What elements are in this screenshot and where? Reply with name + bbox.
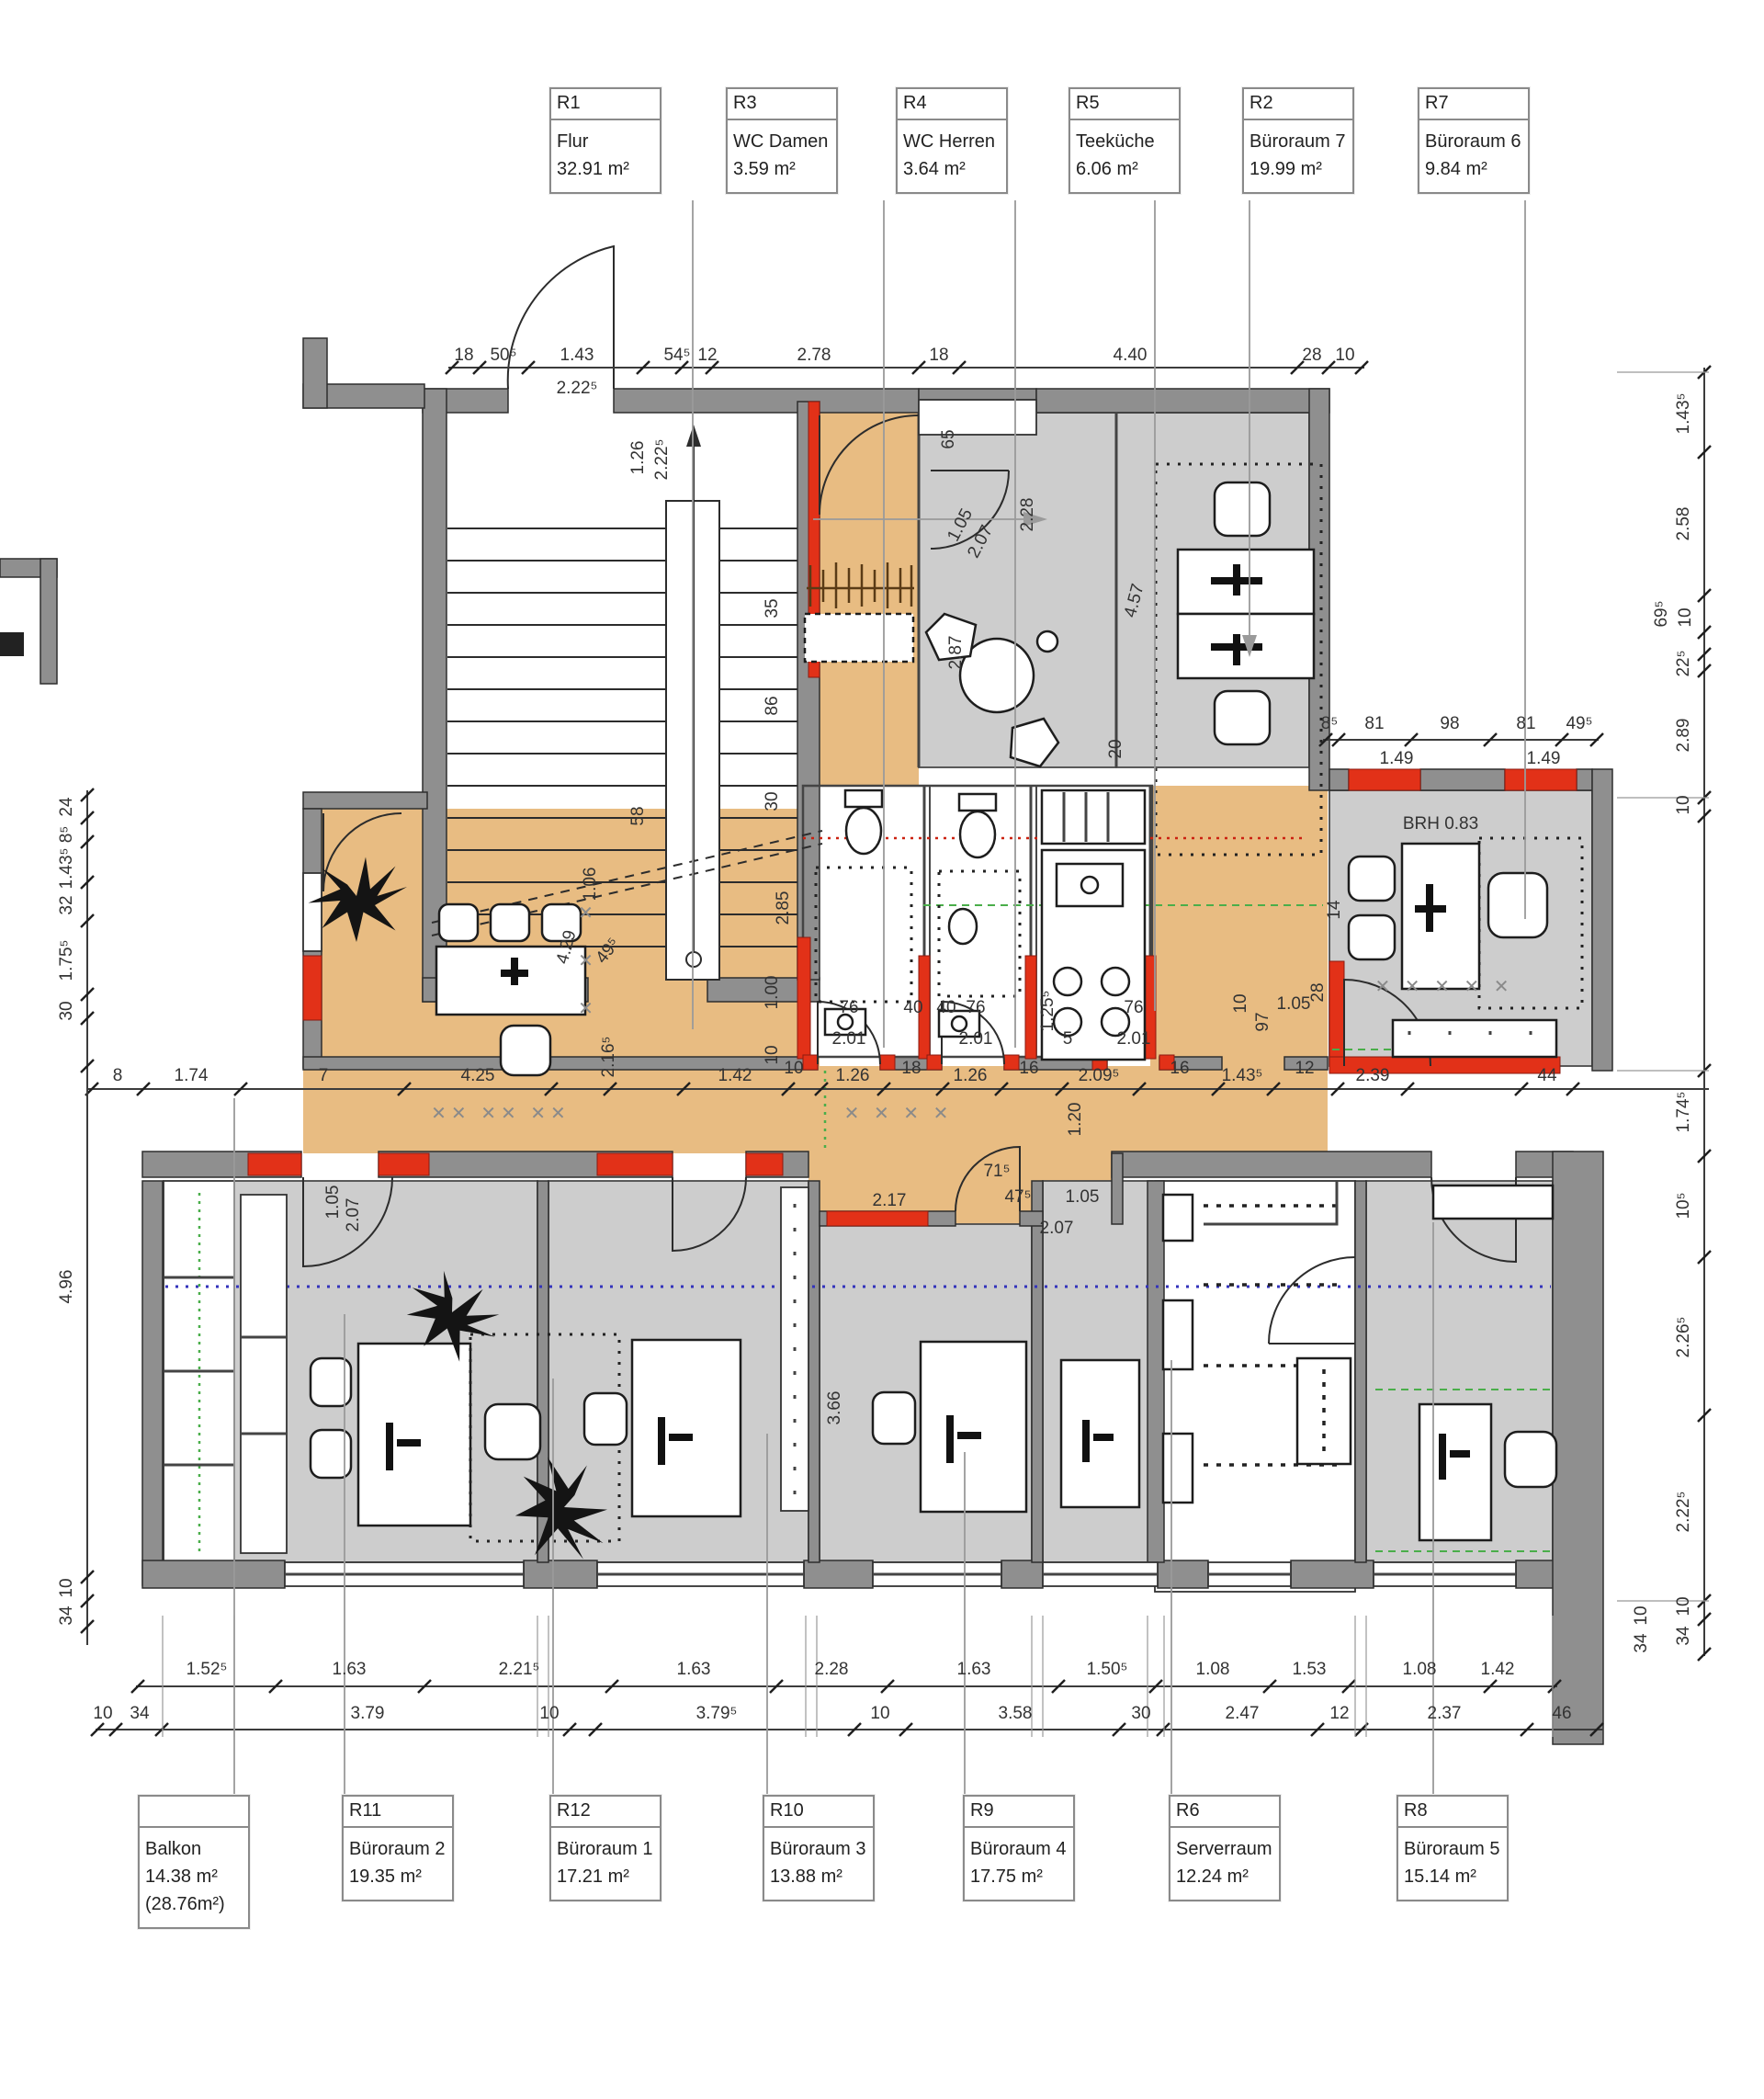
dim-label: 4.40 bbox=[1114, 346, 1148, 365]
dim-label: 20 bbox=[1106, 739, 1125, 758]
dim-label: 1.08 bbox=[1196, 1660, 1230, 1679]
dim-label: 1.26 bbox=[836, 1066, 870, 1085]
room-id: R7 bbox=[1419, 89, 1528, 120]
dim-label: 1.52⁵ bbox=[187, 1660, 228, 1679]
dim-label: BRH 0.83 bbox=[1403, 814, 1478, 834]
room-id: R4 bbox=[898, 89, 1006, 120]
room-name: Serverraum bbox=[1176, 1839, 1272, 1859]
room-area: 19.99 m² bbox=[1249, 159, 1322, 179]
dim-label: 1.43 bbox=[560, 346, 594, 365]
dim-label: 1.25⁵ bbox=[1038, 991, 1057, 1032]
dim-label: 10 bbox=[1676, 607, 1695, 627]
dim-label: 32 bbox=[57, 895, 76, 914]
room-id: R1 bbox=[551, 89, 660, 120]
dim-label: 10 bbox=[1674, 1596, 1693, 1616]
dim-label: 34 bbox=[57, 1605, 76, 1626]
room-label-R7: R7 Büroraum 6 9.84 m² bbox=[1418, 87, 1530, 194]
dim-label: 40 bbox=[903, 998, 922, 1017]
room-area: 3.64 m² bbox=[903, 159, 966, 179]
room-id bbox=[140, 1797, 248, 1828]
dim-label: ✕ bbox=[578, 999, 598, 1019]
dim-label: 10 bbox=[870, 1704, 889, 1723]
dim-label: 10⁵ bbox=[1674, 1192, 1693, 1219]
room-area: 9.84 m² bbox=[1425, 159, 1487, 179]
dim-label: 14 bbox=[1325, 900, 1344, 920]
room-id: R8 bbox=[1398, 1797, 1507, 1828]
room-area: 13.88 m² bbox=[770, 1866, 842, 1887]
room-name: Büroraum 1 bbox=[557, 1839, 653, 1859]
dim-label: 76 bbox=[966, 998, 985, 1017]
room-label-R8: R8 Büroraum 5 15.14 m² bbox=[1396, 1795, 1509, 1901]
room-area: 6.06 m² bbox=[1076, 159, 1138, 179]
dim-label: 49⁵ bbox=[1566, 714, 1592, 733]
room-label-R12: R12 Büroraum 1 17.21 m² bbox=[549, 1795, 661, 1901]
room-area: 12.24 m² bbox=[1176, 1866, 1249, 1887]
dim-label: 2.26⁵ bbox=[1674, 1317, 1693, 1358]
dim-label: 1.74⁵ bbox=[1674, 1092, 1693, 1133]
dim-label: 10 bbox=[784, 1059, 803, 1078]
dim-label: 2.07 bbox=[1040, 1219, 1074, 1238]
dim-label: 12 bbox=[1295, 1059, 1314, 1078]
dim-label: 10 bbox=[1335, 346, 1354, 365]
dim-label: 5 bbox=[1063, 1029, 1073, 1049]
room-area: 15.14 m² bbox=[1404, 1866, 1476, 1887]
room-label-R10: R10 Büroraum 3 13.88 m² bbox=[763, 1795, 875, 1901]
room-name: Büroraum 5 bbox=[1404, 1839, 1500, 1859]
dim-label: 1.05 bbox=[323, 1186, 343, 1220]
room-id: R5 bbox=[1070, 89, 1179, 120]
dim-label: 35 bbox=[763, 598, 782, 618]
dim-label: 2.22⁵ bbox=[1674, 1492, 1693, 1533]
dim-label: 34 bbox=[1674, 1626, 1693, 1646]
dim-label: 28 bbox=[1308, 982, 1328, 1002]
room-label-R3: R3 WC Damen 3.59 m² bbox=[726, 87, 838, 194]
dim-label: 81 bbox=[1516, 714, 1535, 733]
dim-label: 47⁵ bbox=[1004, 1187, 1031, 1207]
dim-label: 8 bbox=[113, 1066, 123, 1085]
dim-label: 46 bbox=[1552, 1704, 1571, 1723]
dim-label: 97 bbox=[1253, 1012, 1272, 1031]
dim-label: 86 bbox=[763, 696, 782, 715]
room-area: 32.91 m² bbox=[557, 159, 629, 179]
dim-label: 1.08 bbox=[1403, 1660, 1437, 1679]
room-name: Teeküche bbox=[1076, 131, 1155, 152]
dim-label: 1.06 bbox=[581, 868, 600, 902]
room-name: Büroraum 4 bbox=[970, 1839, 1067, 1859]
dim-label: 30 bbox=[763, 791, 782, 811]
dim-label: 44 bbox=[1537, 1066, 1557, 1085]
room-label-R4: R4 WC Herren 3.64 m² bbox=[896, 87, 1008, 194]
dim-label: 10 bbox=[539, 1704, 559, 1723]
dim-label: 69⁵ bbox=[1652, 600, 1671, 627]
dim-label: 1.26 bbox=[954, 1066, 988, 1085]
dim-label: 1.74 bbox=[175, 1066, 209, 1085]
dim-label: ✕ ✕ ✕ ✕ bbox=[844, 1104, 954, 1124]
dim-label: 34 bbox=[1632, 1633, 1651, 1653]
dim-label: 58 bbox=[628, 806, 648, 825]
dim-label: 4.25 bbox=[461, 1066, 495, 1085]
dim-label: 2.87 bbox=[946, 636, 966, 670]
dim-label: 1.05 bbox=[1066, 1187, 1100, 1207]
room-area-2: (28.76m²) bbox=[145, 1894, 225, 1914]
dim-label: 1.05 bbox=[1277, 994, 1311, 1014]
room-id: R11 bbox=[344, 1797, 452, 1828]
dim-label: 1.49 bbox=[1380, 749, 1414, 768]
dim-label: 18 bbox=[929, 346, 948, 365]
dim-label: 2.21⁵ bbox=[499, 1660, 540, 1679]
dim-label: 2.85 bbox=[774, 891, 793, 925]
dim-label: 1.50⁵ bbox=[1087, 1660, 1128, 1679]
dim-label: 30 bbox=[1131, 1704, 1150, 1723]
dim-label: 76 bbox=[1124, 998, 1143, 1017]
dim-label: 10 bbox=[1674, 795, 1693, 814]
dim-label: 2.78 bbox=[797, 346, 831, 365]
room-label-R5: R5 Teeküche 6.06 m² bbox=[1069, 87, 1181, 194]
dim-label: 54⁵ bbox=[663, 346, 690, 365]
dim-label: 3.66 bbox=[825, 1391, 844, 1425]
dim-label: 2.28 bbox=[815, 1660, 849, 1679]
room-area: 17.21 m² bbox=[557, 1866, 629, 1887]
dim-label: 2.07 bbox=[344, 1198, 363, 1232]
dim-label: 1.43⁵ bbox=[1222, 1066, 1263, 1085]
dim-label: 1.75⁵ bbox=[57, 940, 76, 981]
dim-label: 12 bbox=[697, 346, 717, 365]
dim-label: 1.42 bbox=[1481, 1660, 1515, 1679]
dim-label: 8⁵ bbox=[1321, 714, 1338, 733]
dim-label: 2.01 bbox=[1117, 1029, 1151, 1049]
dim-label: 1.63 bbox=[677, 1660, 711, 1679]
room-id: R9 bbox=[965, 1797, 1073, 1828]
room-area: 14.38 m² bbox=[145, 1866, 218, 1887]
dim-label: 65 bbox=[939, 429, 958, 448]
dim-label: 30 bbox=[57, 1001, 76, 1020]
dim-label: ✕ bbox=[578, 903, 598, 924]
room-name: WC Damen bbox=[733, 131, 828, 152]
dim-label: 2.16⁵ bbox=[599, 1037, 618, 1078]
room-label-R2: R2 Büroraum 7 19.99 m² bbox=[1242, 87, 1354, 194]
dim-label: 3.58 bbox=[999, 1704, 1033, 1723]
room-id: R3 bbox=[728, 89, 836, 120]
dim-label: 10 bbox=[57, 1578, 76, 1597]
dim-label: 8⁵ bbox=[57, 826, 76, 843]
room-area: 17.75 m² bbox=[970, 1866, 1043, 1887]
dim-label: 34 bbox=[130, 1704, 150, 1723]
dim-label: 18 bbox=[901, 1059, 921, 1078]
dim-label: 1.43⁵ bbox=[1674, 393, 1693, 435]
dim-label: 1.63 bbox=[957, 1660, 991, 1679]
room-label-R11: R11 Büroraum 2 19.35 m² bbox=[342, 1795, 454, 1901]
dim-label: 71⁵ bbox=[983, 1162, 1010, 1181]
dim-label: 2.01 bbox=[832, 1029, 866, 1049]
dim-label: 12 bbox=[1329, 1704, 1349, 1723]
dim-label: 2.39 bbox=[1356, 1066, 1390, 1085]
room-label-R6: R6 Serverraum 12.24 m² bbox=[1169, 1795, 1281, 1901]
dim-label: 1.20 bbox=[1066, 1103, 1085, 1137]
dim-label: 24 bbox=[57, 797, 76, 817]
dim-label: 2.09⁵ bbox=[1079, 1066, 1120, 1085]
dim-label: 1.43⁵ bbox=[57, 848, 76, 890]
dim-label: 16 bbox=[1019, 1059, 1038, 1078]
dim-label: 2.58 bbox=[1674, 507, 1693, 541]
dim-label: 22⁵ bbox=[1674, 650, 1693, 676]
room-id: R12 bbox=[551, 1797, 660, 1828]
room-id: R10 bbox=[764, 1797, 873, 1828]
room-label-balkon: Balkon 14.38 m² (28.76m²) bbox=[138, 1795, 250, 1929]
dim-label: 50⁵ bbox=[490, 346, 516, 365]
room-label-R9: R9 Büroraum 4 17.75 m² bbox=[963, 1795, 1075, 1901]
dim-label: 2.89 bbox=[1674, 719, 1693, 753]
dim-label: 1.00 bbox=[763, 976, 782, 1010]
dim-label: 2.47 bbox=[1226, 1704, 1260, 1723]
dim-label: ✕ bbox=[578, 951, 598, 971]
room-name: Büroraum 7 bbox=[1249, 131, 1346, 152]
floor-plan-page: 1850⁵1.432.22⁵54⁵122.78184.4028108⁵81988… bbox=[0, 0, 1764, 2099]
dim-label: 10 bbox=[93, 1704, 112, 1723]
dim-label: 1.26 bbox=[628, 441, 648, 475]
room-name: Büroraum 3 bbox=[770, 1839, 866, 1859]
dim-label: 4.96 bbox=[57, 1270, 76, 1304]
dim-label: 7 bbox=[319, 1066, 329, 1085]
room-name: Balkon bbox=[145, 1839, 201, 1859]
dim-label: 2.17 bbox=[873, 1191, 907, 1210]
dim-label: 1.53 bbox=[1293, 1660, 1327, 1679]
dim-label: 2.22⁵ bbox=[652, 439, 672, 481]
dim-label: 76 bbox=[839, 998, 858, 1017]
dim-label: 2.22⁵ bbox=[557, 379, 598, 398]
dim-label: 3.79⁵ bbox=[696, 1704, 738, 1723]
dim-label: 81 bbox=[1364, 714, 1384, 733]
dim-label: 10 bbox=[1632, 1605, 1651, 1625]
room-area: 3.59 m² bbox=[733, 159, 796, 179]
dim-label: 10 bbox=[1231, 993, 1250, 1013]
room-id: R6 bbox=[1170, 1797, 1279, 1828]
dim-label: 1.49 bbox=[1527, 749, 1561, 768]
dim-label: ✕ ✕ ✕ ✕ ✕ bbox=[1374, 977, 1513, 997]
dim-label: 40 bbox=[936, 998, 955, 1017]
dim-label: 3.79 bbox=[351, 1704, 385, 1723]
floor-plan-drawing: 1850⁵1.432.22⁵54⁵122.78184.4028108⁵81988… bbox=[0, 0, 1764, 2099]
dim-label: 16 bbox=[1170, 1059, 1189, 1078]
dim-label: ✕✕ ✕✕ ✕✕ bbox=[431, 1104, 571, 1124]
room-name: WC Herren bbox=[903, 131, 995, 152]
dim-label: 1.63 bbox=[333, 1660, 367, 1679]
room-name: Büroraum 6 bbox=[1425, 131, 1521, 152]
dim-label: 98 bbox=[1440, 714, 1459, 733]
dim-label: 1.42 bbox=[718, 1066, 752, 1085]
room-id: R2 bbox=[1244, 89, 1352, 120]
dim-label: 28 bbox=[1302, 346, 1321, 365]
dim-label: 2.37 bbox=[1428, 1704, 1462, 1723]
office4-furniture bbox=[1061, 1360, 1139, 1507]
dim-label: 2.01 bbox=[959, 1029, 993, 1049]
dim-label: 18 bbox=[454, 346, 473, 365]
room-name: Flur bbox=[557, 131, 588, 152]
dim-label: 2.28 bbox=[1018, 498, 1037, 532]
room-label-R1: R1 Flur 32.91 m² bbox=[549, 87, 661, 194]
room-area: 19.35 m² bbox=[349, 1866, 422, 1887]
room-name: Büroraum 2 bbox=[349, 1839, 446, 1859]
dim-label: 10 bbox=[763, 1045, 782, 1064]
